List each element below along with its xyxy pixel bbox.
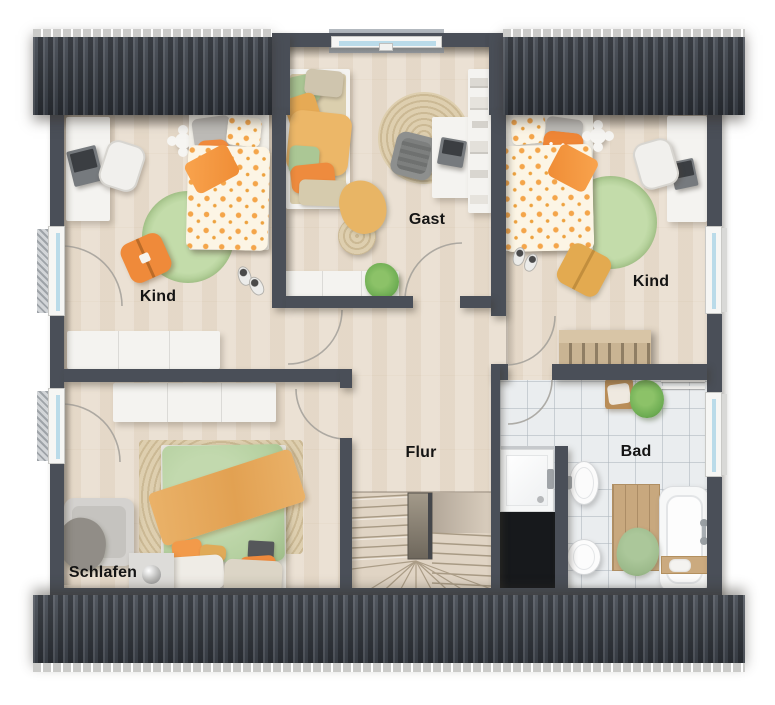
plant-gast <box>365 263 399 299</box>
window-schlafen <box>48 388 65 464</box>
washbasin <box>569 461 599 505</box>
roof-gutter <box>33 663 745 672</box>
window-bad <box>705 392 722 477</box>
roof-gutter <box>33 29 272 37</box>
shaft-void <box>500 512 555 592</box>
shower-drain <box>537 496 544 503</box>
room-label-kind-left: Kind <box>140 288 176 306</box>
shower-tray <box>500 449 554 512</box>
wall-exterior-left <box>50 98 64 600</box>
wall-kindleft-schlafen <box>64 369 340 382</box>
wall-gast-bottom <box>286 296 413 308</box>
roof-top-left <box>33 29 272 115</box>
laptop-gast <box>437 137 467 168</box>
plant-bad <box>630 380 664 418</box>
lamp-sphere <box>142 565 161 584</box>
wall-dormer-left <box>272 33 290 115</box>
roof-top-right <box>503 29 745 115</box>
towel-on-stool <box>607 383 632 406</box>
wall-flur-bad <box>491 364 500 598</box>
sideboard-kind-left <box>67 331 220 369</box>
wall-shower-stub <box>555 446 568 598</box>
wall-kindleft-gast <box>272 110 286 308</box>
wall-bad-top-right <box>552 364 707 380</box>
laptop-screen <box>70 148 98 172</box>
window-sill-bad <box>722 394 727 475</box>
window-sill-kind-right <box>722 228 727 312</box>
pillow-white-schlafen <box>167 554 225 592</box>
bathtub-caddy <box>661 556 709 574</box>
staircase <box>352 477 491 598</box>
wall-gast-bottom-stub <box>460 296 491 308</box>
room-label-flur: Flur <box>405 444 436 462</box>
room-label-kind-right: Kind <box>633 273 669 291</box>
flower-table-kind-right <box>584 122 612 150</box>
pillow-polka-kind-left <box>226 115 263 147</box>
room-label-gast: Gast <box>409 211 445 229</box>
toilet <box>567 539 601 575</box>
towel-rail <box>661 379 705 390</box>
wall-gast-kindright <box>491 110 506 316</box>
wall-exterior-right <box>707 98 722 600</box>
pillow-polka-kind-right <box>510 114 548 146</box>
window-kind-right <box>705 226 722 314</box>
shower-faucet <box>547 469 554 489</box>
towel-roll <box>669 559 691 572</box>
wall-schlafen-stub <box>340 369 352 388</box>
room-label-schlafen: Schlafen <box>69 564 137 582</box>
window-dormer-handle <box>379 43 393 51</box>
slippers-kind-right <box>513 247 539 277</box>
slippers-kind-left <box>238 266 264 298</box>
room-label-bad: Bad <box>621 443 652 461</box>
wall-schlafen-flur <box>340 438 352 598</box>
window-kind-left <box>48 226 65 316</box>
roof-bottom <box>33 595 745 672</box>
roof-gutter <box>503 29 745 37</box>
stool-bad <box>605 379 633 409</box>
floor-plan-canvas: Kind Gast Kind Schlafen Flur Bad <box>0 0 775 705</box>
wardrobe-schlafen <box>113 383 276 422</box>
